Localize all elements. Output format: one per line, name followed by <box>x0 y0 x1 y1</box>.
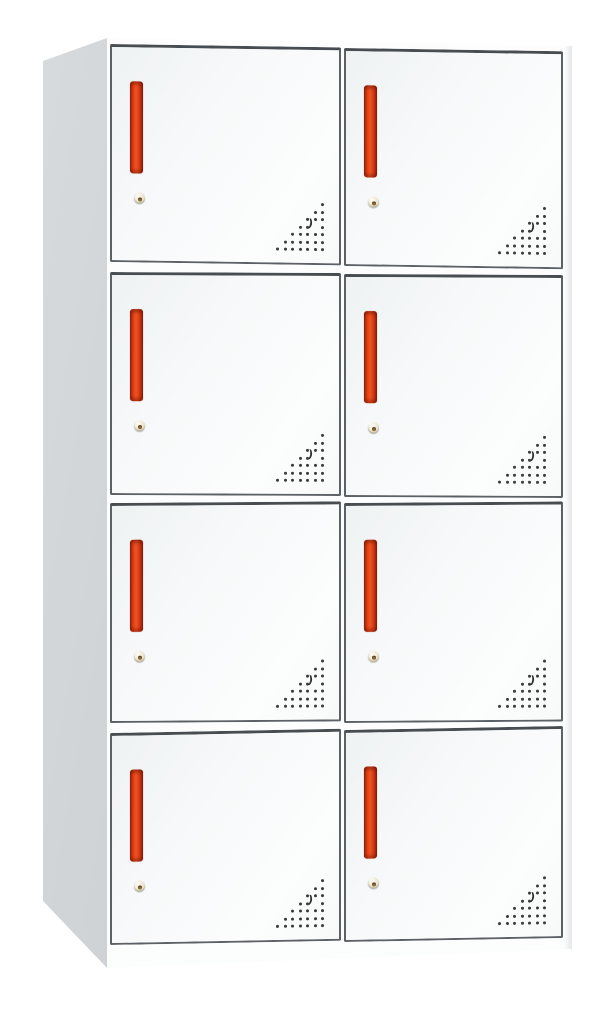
vent-dot <box>314 894 317 897</box>
vent-dot <box>521 907 524 910</box>
vent-dot <box>521 458 524 461</box>
vent-dot <box>291 248 294 251</box>
vent-dot <box>306 240 309 243</box>
vent-dot <box>321 248 324 251</box>
vent-dot <box>528 252 531 255</box>
vent-dot <box>521 690 524 693</box>
vent-dot <box>299 471 302 474</box>
keyhole-icon <box>372 427 376 431</box>
vent-dot <box>314 233 317 236</box>
vent-dot <box>321 456 324 459</box>
vent-dot <box>314 924 317 927</box>
vent-dot <box>528 907 531 910</box>
vent-dot <box>543 237 546 240</box>
vent-dot <box>314 241 317 244</box>
vent-dot <box>513 244 516 247</box>
door-handle-icon <box>130 81 143 173</box>
vent-dot <box>314 675 317 678</box>
vent-dot <box>521 922 524 925</box>
vent-dot <box>306 248 309 251</box>
vent-dot <box>536 466 539 469</box>
vent-dot <box>528 237 531 240</box>
vent-dot <box>291 233 294 236</box>
door-handle-icon <box>364 85 377 177</box>
vent-dot <box>314 690 317 693</box>
vent-dot <box>314 218 317 221</box>
vent-dot <box>528 914 531 917</box>
vent-dot <box>299 690 302 693</box>
vent-dot <box>513 481 516 484</box>
vent-dot <box>513 473 516 476</box>
vent-dot <box>321 909 324 912</box>
vent-dot <box>299 682 302 685</box>
vent-dot <box>506 481 509 484</box>
vent-dot <box>521 252 524 255</box>
vent-dot <box>314 697 317 700</box>
vent-dot <box>291 240 294 243</box>
vent-dot <box>321 682 324 685</box>
vent-dot <box>321 917 324 920</box>
vent-dot <box>543 214 546 217</box>
keyhole-icon <box>138 197 142 201</box>
product-photo-scene: ) ) ) ) ) ) ) <box>0 0 605 1009</box>
vent-dot <box>536 921 539 924</box>
vent-dot <box>291 697 294 700</box>
vent-dot <box>521 473 524 476</box>
vent-dot <box>536 237 539 240</box>
vent-dot <box>543 884 546 887</box>
vent-dot <box>306 690 309 693</box>
vent-dot <box>498 705 501 708</box>
vent-dot <box>536 443 539 446</box>
vent-dot <box>543 876 546 879</box>
vent-dot <box>284 240 287 243</box>
vent-dot <box>321 902 324 905</box>
vent-dot <box>536 214 539 217</box>
vent-dot <box>321 241 324 244</box>
vent-dot <box>513 705 516 708</box>
vent-dot <box>543 244 546 247</box>
vent-dot <box>314 909 317 912</box>
vent-crescent-hole: ) <box>307 674 314 686</box>
vent-dot <box>284 471 287 474</box>
locker-door-7: ) <box>110 729 341 945</box>
vent-dot <box>314 667 317 670</box>
vent-dot <box>291 464 294 467</box>
vent-dot <box>321 449 324 452</box>
vent-dot <box>321 441 324 444</box>
vent-dot <box>536 451 539 454</box>
vent-holes-icon: ) <box>274 877 327 931</box>
vent-dot <box>314 887 317 890</box>
vent-dot <box>528 466 531 469</box>
vent-dot <box>291 705 294 708</box>
vent-dot <box>536 675 539 678</box>
vent-dot <box>506 473 509 476</box>
locker-door-4: ) <box>344 274 563 498</box>
vent-dot <box>321 434 324 437</box>
vent-dot <box>498 922 501 925</box>
vent-dot <box>513 914 516 917</box>
vent-dot <box>299 464 302 467</box>
vent-dot <box>284 479 287 482</box>
vent-dot <box>513 237 516 240</box>
vent-dot <box>521 705 524 708</box>
vent-holes-icon: ) <box>496 658 549 711</box>
vent-dot <box>306 917 309 920</box>
vent-dot <box>528 690 531 693</box>
vent-dot <box>521 914 524 917</box>
vent-dot <box>521 237 524 240</box>
vent-dot <box>543 473 546 476</box>
vent-dot <box>543 451 546 454</box>
vent-dot <box>543 466 546 469</box>
cam-lock-icon <box>368 651 379 662</box>
vent-dot <box>506 244 509 247</box>
vent-dot <box>321 675 324 678</box>
vent-dot <box>521 244 524 247</box>
vent-dot <box>314 917 317 920</box>
vent-dot <box>521 899 524 902</box>
keyhole-icon <box>138 885 142 889</box>
vent-dot <box>521 481 524 484</box>
vent-dot <box>299 240 302 243</box>
vent-dot <box>513 907 516 910</box>
vent-holes-icon: ) <box>274 657 327 710</box>
vent-dot <box>498 251 501 254</box>
vent-dot <box>543 229 546 232</box>
keyhole-icon <box>372 656 376 660</box>
vent-dot <box>321 660 324 663</box>
vent-dot <box>306 479 309 482</box>
keyhole-icon <box>138 656 142 660</box>
vent-dot <box>543 899 546 902</box>
vent-dot <box>521 229 524 232</box>
vent-dot <box>321 690 324 693</box>
vent-dot <box>543 481 546 484</box>
keyhole-icon <box>372 882 376 886</box>
vent-crescent-hole: ) <box>529 891 536 903</box>
vent-dot <box>284 705 287 708</box>
vent-dot <box>536 697 539 700</box>
vent-dot <box>536 705 539 708</box>
vent-dot <box>521 466 524 469</box>
vent-dot <box>306 464 309 467</box>
vent-dot <box>528 705 531 708</box>
vent-dot <box>314 211 317 214</box>
door-handle-icon <box>364 766 377 858</box>
vent-dot <box>498 481 501 484</box>
vent-dot <box>528 697 531 700</box>
vent-crescent-hole: ) <box>307 894 314 906</box>
vent-dot <box>536 690 539 693</box>
keyhole-icon <box>138 425 142 429</box>
vent-holes-icon: ) <box>496 874 549 928</box>
vent-holes-icon: ) <box>274 432 327 485</box>
cam-lock-icon <box>134 192 145 203</box>
cam-lock-icon <box>134 651 145 662</box>
vent-dot <box>321 479 324 482</box>
vent-dot <box>321 464 324 467</box>
vent-dot <box>321 211 324 214</box>
vent-dot <box>506 922 509 925</box>
vent-dot <box>321 233 324 236</box>
vent-dot <box>506 705 509 708</box>
vent-crescent-hole: ) <box>529 674 536 686</box>
vent-dot <box>536 667 539 670</box>
vent-dot <box>321 894 324 897</box>
vent-dot <box>513 697 516 700</box>
door-handle-icon <box>364 540 377 632</box>
vent-crescent-hole: ) <box>529 221 536 233</box>
vent-dot <box>543 222 546 225</box>
vent-dot <box>543 705 546 708</box>
vent-dot <box>536 244 539 247</box>
vent-dot <box>299 902 302 905</box>
vent-dot <box>543 675 546 678</box>
vent-holes-icon: ) <box>496 204 549 258</box>
vent-dot <box>543 458 546 461</box>
vent-dot <box>543 921 546 924</box>
vent-dot <box>543 690 546 693</box>
vent-dot <box>543 436 546 439</box>
vent-dot <box>299 909 302 912</box>
vent-dot <box>291 690 294 693</box>
vent-dot <box>536 473 539 476</box>
vent-dot <box>291 910 294 913</box>
vent-dot <box>299 233 302 236</box>
vent-dot <box>291 479 294 482</box>
vent-crescent-hole: ) <box>307 218 314 230</box>
door-handle-icon <box>130 540 143 632</box>
cam-lock-icon <box>368 877 379 888</box>
vent-dot <box>306 705 309 708</box>
vent-dot <box>543 891 546 894</box>
vent-dot <box>299 705 302 708</box>
vent-dot <box>528 244 531 247</box>
vent-dot <box>536 884 539 887</box>
vent-dot <box>543 443 546 446</box>
keyhole-icon <box>372 201 376 205</box>
vent-dot <box>299 697 302 700</box>
vent-dot <box>314 449 317 452</box>
vent-dot <box>321 887 324 890</box>
vent-dot <box>513 252 516 255</box>
vent-dot <box>321 705 324 708</box>
vent-dot <box>528 481 531 484</box>
locker-door-6: ) <box>344 501 563 723</box>
vent-dot <box>321 879 324 882</box>
vent-dot <box>306 471 309 474</box>
vent-dot <box>521 697 524 700</box>
door-handle-icon <box>130 309 143 401</box>
vent-dot <box>321 226 324 229</box>
vent-dot <box>291 917 294 920</box>
vent-dot <box>291 471 294 474</box>
vent-holes-icon: ) <box>496 434 549 487</box>
door-handle-icon <box>364 311 377 403</box>
locker-door-1: ) <box>110 44 341 265</box>
vent-dot <box>276 705 279 708</box>
vent-dot <box>276 247 279 250</box>
vent-dot <box>506 251 509 254</box>
vent-dot <box>543 914 546 917</box>
vent-dot <box>536 252 539 255</box>
vent-dot <box>306 909 309 912</box>
vent-dot <box>299 456 302 459</box>
vent-dot <box>299 917 302 920</box>
vent-dot <box>321 667 324 670</box>
vent-dot <box>536 481 539 484</box>
vent-dot <box>314 471 317 474</box>
vent-dot <box>321 697 324 700</box>
vent-dot <box>299 479 302 482</box>
vent-dot <box>536 891 539 894</box>
vent-dot <box>321 924 324 927</box>
vent-dot <box>284 925 287 928</box>
vent-dot <box>543 906 546 909</box>
vent-dot <box>321 203 324 206</box>
vent-dot <box>528 473 531 476</box>
vent-dot <box>536 906 539 909</box>
vent-dot <box>276 479 279 482</box>
vent-dot <box>306 697 309 700</box>
vent-dot <box>306 924 309 927</box>
vent-dot <box>506 914 509 917</box>
vent-dot <box>284 697 287 700</box>
cam-lock-icon <box>368 196 379 207</box>
vent-dot <box>299 225 302 228</box>
vent-dot <box>291 925 294 928</box>
vent-dot <box>528 922 531 925</box>
locker-door-5: ) <box>110 501 341 723</box>
vent-dot <box>314 464 317 467</box>
locker-door-8: ) <box>344 726 563 942</box>
vent-dot <box>314 441 317 444</box>
vent-dot <box>321 218 324 221</box>
vent-dot <box>306 233 309 236</box>
vent-holes-icon: ) <box>274 200 327 254</box>
vent-dot <box>536 222 539 225</box>
vent-dot <box>513 466 516 469</box>
vent-dot <box>299 248 302 251</box>
cam-lock-icon <box>134 420 145 431</box>
vent-dot <box>513 690 516 693</box>
vent-dot <box>543 682 546 685</box>
cam-lock-icon <box>368 422 379 433</box>
locker-door-2: ) <box>344 48 563 269</box>
vent-dot <box>543 660 546 663</box>
vent-dot <box>513 922 516 925</box>
vent-dot <box>284 248 287 251</box>
vent-dot <box>299 924 302 927</box>
cam-lock-icon <box>134 880 145 891</box>
vent-dot <box>314 705 317 708</box>
vent-dot <box>543 667 546 670</box>
locker-door-3: ) <box>110 272 341 496</box>
cabinet-right-edge <box>564 40 572 950</box>
vent-dot <box>321 471 324 474</box>
vent-crescent-hole: ) <box>307 449 314 461</box>
door-handle-icon <box>130 769 143 861</box>
vent-dot <box>543 697 546 700</box>
vent-dot <box>314 248 317 251</box>
vent-dot <box>543 207 546 210</box>
vent-dot <box>314 479 317 482</box>
vent-dot <box>284 917 287 920</box>
vent-dot <box>521 682 524 685</box>
vent-dot <box>543 252 546 255</box>
vent-dot <box>506 697 509 700</box>
vent-dot <box>536 914 539 917</box>
vent-crescent-hole: ) <box>529 451 536 463</box>
vent-dot <box>276 925 279 928</box>
